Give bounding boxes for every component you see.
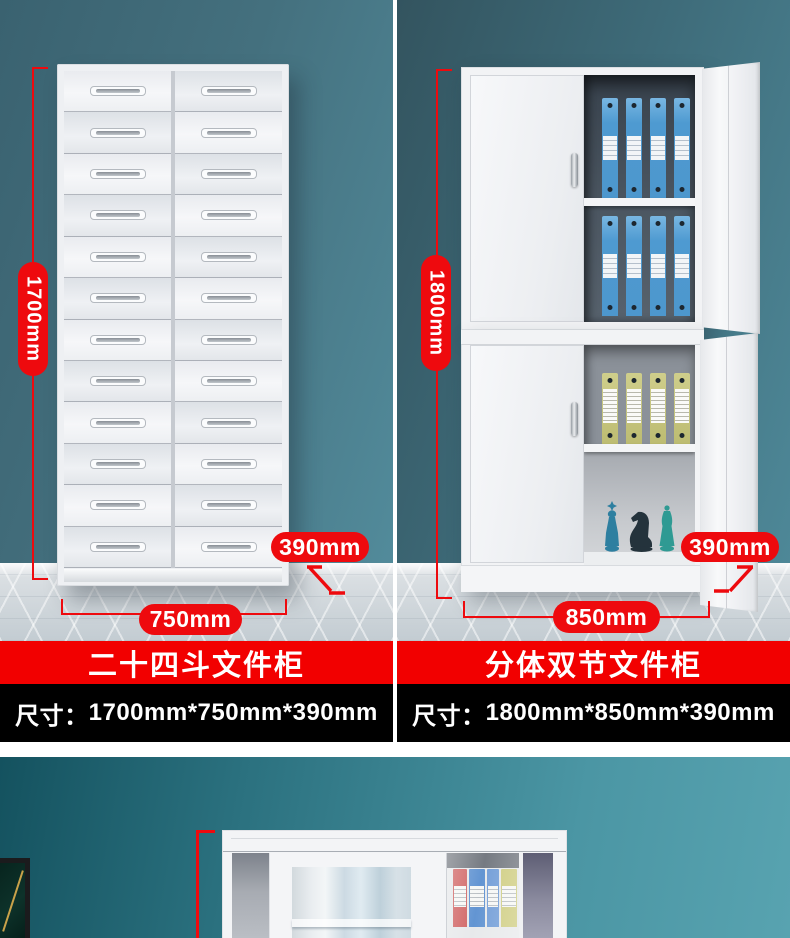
- right-size-banner: 尺寸： 1800mm*850mm*390mm: [397, 684, 790, 742]
- drawer-handle: [201, 252, 257, 262]
- cabinet-interior: [584, 345, 695, 565]
- drawer: [175, 112, 282, 153]
- drawer-handle: [90, 128, 146, 138]
- drawer: [64, 71, 171, 112]
- cabinet-plinth: [64, 569, 282, 582]
- drawer: [64, 112, 171, 153]
- binder-shelf: [602, 216, 690, 316]
- drawer-handle: [201, 376, 257, 386]
- door-handle: [571, 153, 578, 187]
- drawer-handle: [90, 418, 146, 428]
- drawer: [175, 237, 282, 278]
- drawer: [64, 361, 171, 402]
- drawer-handle: [201, 128, 257, 138]
- drawer-handle: [201, 418, 257, 428]
- right-product-name-banner: 分体双节文件柜: [397, 641, 790, 684]
- dimension-tick: [61, 599, 63, 615]
- drawer-handle: [201, 500, 257, 510]
- dimension-tick: [436, 597, 452, 599]
- unit-top-band: [461, 330, 704, 345]
- drawer: [64, 320, 171, 361]
- shelf: [584, 444, 695, 452]
- cabinet-top-unit: [461, 67, 704, 330]
- drawer-handle: [90, 335, 146, 345]
- binder: [650, 373, 666, 444]
- drawer-handle: [90, 252, 146, 262]
- drawer-handle: [90, 376, 146, 386]
- size-value: 1800mm*850mm*390mm: [486, 699, 775, 727]
- depth-label: 390mm: [681, 532, 779, 562]
- cabinet-interior: [584, 75, 695, 322]
- lower-compartment: [584, 452, 695, 565]
- binder: [650, 98, 666, 198]
- dimension-tick: [463, 601, 465, 618]
- next-product-photo-partial: [0, 757, 790, 938]
- right-product-photo: 1800mm 850mm 390mm: [397, 0, 790, 641]
- drawer-grid: [64, 71, 282, 568]
- drawer: [175, 444, 282, 485]
- binder-shelf: [602, 98, 690, 198]
- drawer-handle: [90, 210, 146, 220]
- panel-divider: [393, 0, 397, 742]
- left-product-name: 二十四斗文件柜: [88, 642, 305, 684]
- chess-pieces-decor: [600, 501, 680, 555]
- drawer-handle: [90, 542, 146, 552]
- size-prefix: 尺寸：: [412, 696, 486, 731]
- drawer-handle: [201, 293, 257, 303]
- drawer: [175, 320, 282, 361]
- drawer-handle: [90, 459, 146, 469]
- wall-art-frame: [0, 858, 30, 938]
- drawer-handle: [201, 169, 257, 179]
- binder: [626, 98, 642, 198]
- size-prefix: 尺寸：: [15, 696, 89, 731]
- size-value: 1700mm*750mm*390mm: [89, 699, 378, 727]
- drawer-handle: [90, 86, 146, 96]
- binder: [674, 216, 690, 316]
- depth-indicator: [710, 563, 758, 601]
- drawer: [175, 71, 282, 112]
- depth-indicator: [303, 563, 351, 601]
- dimension-tick: [196, 830, 215, 833]
- height-label: 1700mm: [18, 262, 48, 376]
- shelf: [584, 198, 695, 206]
- drawer: [175, 154, 282, 195]
- dimension-tick: [32, 67, 48, 69]
- drawer-handle: [201, 542, 257, 552]
- cabinet-top-frame: [223, 831, 566, 852]
- left-product-photo: 1700mm 750mm 390mm: [0, 0, 393, 641]
- door-recess: [232, 853, 269, 938]
- right-product-name: 分体双节文件柜: [485, 642, 702, 684]
- dimension-tick: [32, 578, 48, 580]
- drawer: [175, 527, 282, 568]
- closed-door: [470, 345, 584, 563]
- drawer-handle: [201, 86, 257, 96]
- drawer: [64, 195, 171, 236]
- binder-shelf: [602, 373, 690, 444]
- binder: [602, 373, 618, 444]
- drawer: [64, 485, 171, 526]
- binder: [626, 373, 642, 444]
- binder: [650, 216, 666, 316]
- drawer-handle: [201, 459, 257, 469]
- width-label: 850mm: [553, 601, 660, 633]
- left-product-name-banner: 二十四斗文件柜: [0, 641, 393, 684]
- drawer: [64, 402, 171, 443]
- glass-pane: [292, 867, 411, 938]
- glass-door-cabinet: [223, 831, 566, 938]
- drawer: [64, 154, 171, 195]
- drawer: [64, 237, 171, 278]
- dimension-tick: [285, 599, 287, 615]
- drawer-cabinet: [57, 64, 289, 586]
- section-gap: [0, 742, 790, 757]
- dimension-tick: [436, 69, 452, 71]
- depth-label: 390mm: [271, 532, 369, 562]
- door-recess: [523, 853, 553, 938]
- drawer-handle: [201, 210, 257, 220]
- binder: [674, 98, 690, 198]
- drawer: [175, 278, 282, 319]
- drawer: [64, 527, 171, 568]
- product-detail-image: 1700mm 750mm 390mm: [0, 0, 790, 938]
- dimension-tick: [708, 601, 710, 618]
- cabinet-plinth: [461, 565, 704, 592]
- rear-glass-door: [447, 853, 519, 938]
- left-size-banner: 尺寸： 1700mm*750mm*390mm: [0, 684, 393, 742]
- cabinet-interior: [232, 853, 553, 938]
- drawer: [175, 195, 282, 236]
- binder: [626, 216, 642, 316]
- cabinet-floor: [584, 552, 695, 565]
- sliding-glass-door: [269, 853, 447, 938]
- door-handle: [571, 402, 578, 436]
- drawer-handle: [90, 500, 146, 510]
- drawer: [64, 278, 171, 319]
- cabinet-bottom-unit: [461, 330, 704, 592]
- drawer-handle: [90, 293, 146, 303]
- drawer: [175, 402, 282, 443]
- closed-door: [470, 75, 584, 322]
- binder: [602, 216, 618, 316]
- drawer: [175, 361, 282, 402]
- height-label: 1800mm: [421, 255, 451, 371]
- drawer-handle: [201, 335, 257, 345]
- height-dimension-line: [196, 830, 199, 938]
- glass-reflection: [447, 853, 519, 938]
- binder: [602, 98, 618, 198]
- open-door: [702, 62, 760, 334]
- drawer-handle: [90, 169, 146, 179]
- width-label: 750mm: [139, 604, 242, 635]
- binder: [674, 373, 690, 444]
- two-section-cabinet: [461, 67, 704, 592]
- drawer: [175, 485, 282, 526]
- drawer: [64, 444, 171, 485]
